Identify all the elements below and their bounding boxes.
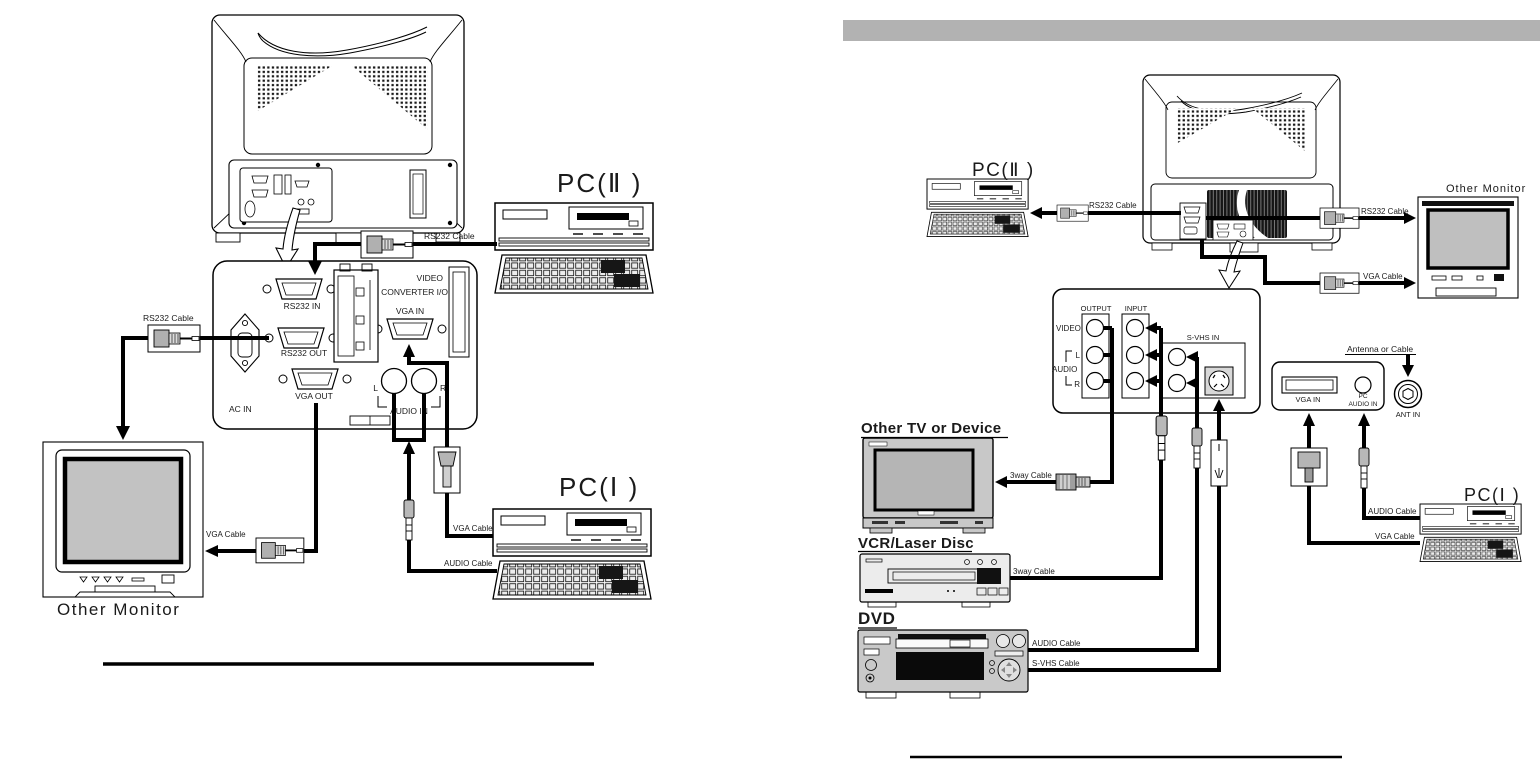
vga-plug-icon [256, 538, 304, 563]
ant-in-label: ANT IN [1396, 410, 1420, 419]
vga-plug-icon [1291, 448, 1327, 486]
threeway-plug-icon [1056, 474, 1102, 490]
converter-connector [334, 264, 378, 362]
manual-page: RS232 IN RS232 OUT VGA OUT AC IN VIDEO C… [0, 0, 1540, 760]
audio-left-label: L [373, 383, 378, 393]
audio-label: AUDIO [1052, 365, 1077, 374]
audio-plug-icon [1359, 448, 1369, 488]
cable-label: RS232 Cable [424, 231, 475, 241]
pc2-label: PC(Ⅱ ) [972, 160, 1035, 181]
pc-input-panel: VGA IN PC AUDIO IN [1272, 362, 1384, 410]
rs232-plug-icon [1320, 208, 1359, 228]
cable-label: 3way Cable [1013, 567, 1055, 576]
rs232-in-label: RS232 IN [284, 301, 321, 311]
vcr-icon [860, 554, 1010, 607]
vga-in-label: VGA IN [396, 306, 424, 316]
input-label: INPUT [1125, 304, 1148, 313]
antenna-cable-label: Antenna or Cable [1347, 344, 1413, 354]
av-plug-icon [1156, 416, 1167, 460]
vcr-label: VCR/Laser Disc [858, 535, 974, 552]
audio-plug-icon [404, 500, 414, 540]
page-header-bar [843, 20, 1540, 41]
connection-diagrams: RS232 IN RS232 OUT VGA OUT AC IN VIDEO C… [0, 0, 1540, 760]
audio-in-right-jack [412, 369, 437, 394]
pc-label: PC [1358, 393, 1367, 400]
svhs-plug-icon [1211, 440, 1227, 486]
rs232-plug-icon [361, 231, 413, 258]
cable-label: AUDIO Cable [444, 559, 493, 568]
video-in-jack [1127, 320, 1144, 337]
cable-label: RS232 Cable [1361, 207, 1409, 216]
dvd-label: DVD [858, 609, 895, 628]
cable-label: RS232 Cable [143, 313, 194, 323]
right-label: R [1074, 380, 1080, 389]
dvd-icon [858, 630, 1028, 698]
vga-out-label: VGA OUT [295, 391, 333, 401]
output-label: OUTPUT [1081, 304, 1112, 313]
video-label: VIDEO [417, 273, 444, 283]
connector-panel: RS232 IN RS232 OUT VGA OUT AC IN VIDEO C… [213, 261, 477, 429]
vga-plug-icon [434, 447, 460, 493]
audio-out-left-jack [1087, 347, 1104, 364]
pc-audio-in-label: AUDIO IN [1349, 401, 1378, 408]
svhs-audio-left-jack [1169, 349, 1186, 366]
pc1-icon [493, 509, 651, 599]
cable-label: RS232 Cable [1089, 201, 1137, 210]
pc2-icon [495, 203, 653, 293]
svhs-audio-right-jack [1169, 375, 1186, 392]
audio-in-left-jack [1127, 347, 1144, 364]
pc2-icon [927, 179, 1028, 237]
vga-plug-icon [1320, 273, 1359, 293]
cable-label: VGA Cable [206, 530, 246, 539]
cable-label: S-VHS Cable [1032, 659, 1080, 668]
pc1-label: PC(Ⅰ ) [1464, 485, 1520, 505]
rs232-out-label: RS232 OUT [281, 348, 327, 358]
ant-in-connector [1395, 381, 1422, 408]
pc1-icon [1420, 504, 1521, 562]
cable-label: VGA Cable [453, 524, 493, 533]
pc-audio-in-jack [1355, 377, 1371, 393]
rs232-plug-icon [148, 325, 200, 352]
video-out-jack [1087, 320, 1104, 337]
cable-label: 3way Cable [1010, 471, 1052, 480]
other-monitor-label: Other Monitor [57, 600, 180, 619]
cable-label: AUDIO Cable [1032, 639, 1081, 648]
left-label: L [1076, 351, 1081, 360]
left-connection-diagram: RS232 IN RS232 OUT VGA OUT AC IN VIDEO C… [43, 15, 653, 664]
cable-label: VGA Cable [1363, 272, 1403, 281]
ac-in-label: AC IN [229, 404, 252, 414]
pc1-label: PC(Ⅰ ) [559, 472, 639, 502]
svideo-connector [1205, 367, 1233, 395]
audio-in-left-jack [382, 369, 407, 394]
vga-in-label: VGA IN [1295, 395, 1320, 404]
rs232-plug-icon [1057, 205, 1088, 221]
other-monitor-icon [43, 442, 203, 597]
audio-out-right-jack [1087, 373, 1104, 390]
svhs-in-label: S-VHS IN [1187, 333, 1220, 342]
cable-label: AUDIO Cable [1368, 507, 1417, 516]
other-tv-label: Other TV or Device [861, 420, 1001, 437]
right-connection-diagram: PC(Ⅱ ) Other Monitor OUTPUT INPU [858, 75, 1526, 757]
other-monitor-label: Other Monitor [1446, 183, 1526, 195]
pc2-label: PC(Ⅱ ) [557, 168, 642, 198]
audio-in-right-jack [1127, 373, 1144, 390]
video-label: VIDEO [1056, 324, 1081, 333]
other-tv-icon [863, 438, 993, 533]
other-monitor-icon [1418, 197, 1518, 298]
converter-io-label: CONVERTER I/O [381, 287, 448, 297]
cable-label: VGA Cable [1375, 532, 1415, 541]
audio-plug-icon [1192, 428, 1202, 468]
